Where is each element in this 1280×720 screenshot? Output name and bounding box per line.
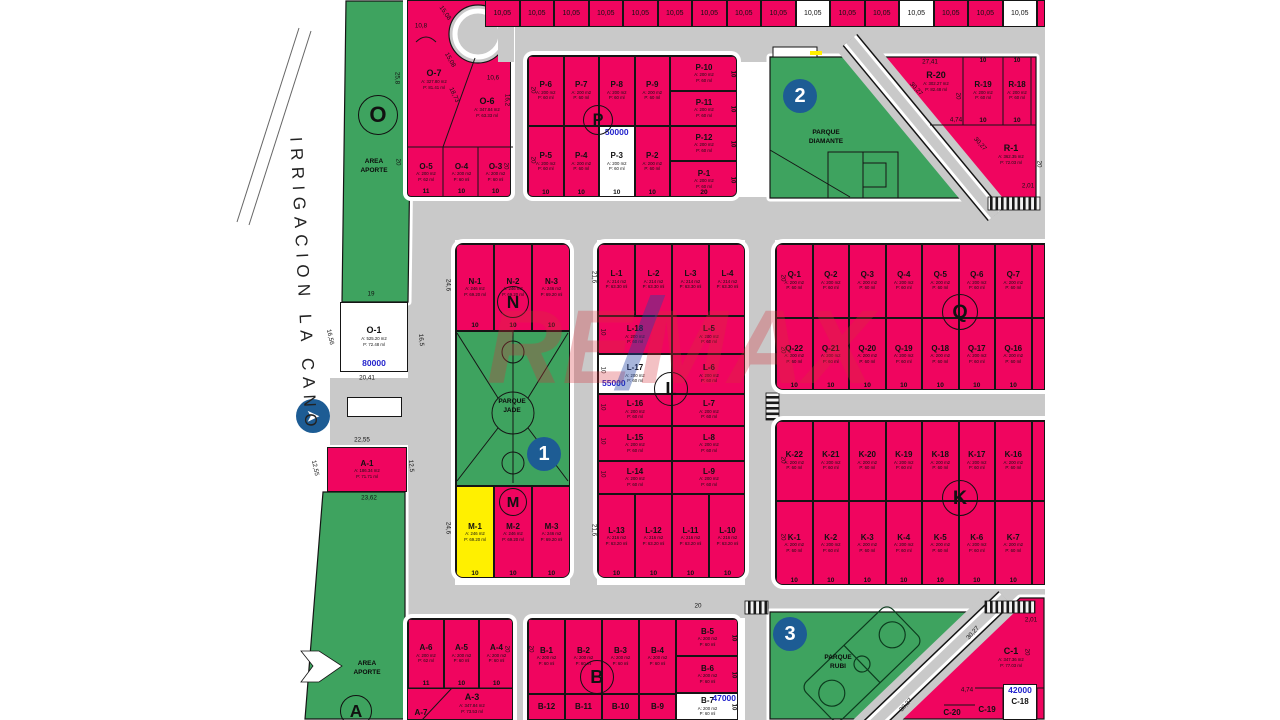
measurement-label: 10 [600, 403, 607, 410]
lot-C-1[interactable]: C-1A: 347.36 m2P: 77.03 ml [982, 642, 1040, 674]
park-label-line: PARQUE [809, 129, 843, 138]
lot-R-18[interactable]: R-18A: 200 m2P: 60 ml1010 [1003, 57, 1031, 125]
top-row-lot[interactable]: 10,05 [865, 0, 900, 27]
lot-frontage-label: 10 [963, 117, 1003, 124]
lot-code: O-1 [366, 326, 381, 336]
measurement-label: 18,73 [447, 86, 460, 103]
lot-C-19[interactable]: C-19 [972, 700, 1002, 720]
block-letter-K: K [942, 480, 978, 516]
measurement-label: 4,74 [961, 687, 973, 694]
measurement-label: 20 [780, 346, 787, 353]
measurement-label: 25,8 [394, 72, 401, 84]
map-labels: R-20A: 302.27 m2P: 82.48 mlR-19A: 200 m2… [0, 0, 1280, 720]
map-marker-2[interactable]: 2 [783, 79, 817, 113]
top-row-lot[interactable]: 10,05 [968, 0, 1003, 27]
measurement-label: 20 [780, 456, 787, 463]
block-letter-M: M [499, 488, 527, 516]
measurement-label: 15,08 [443, 51, 457, 68]
measurement-label: 10,6 [487, 75, 499, 82]
measurement-label: 20 [955, 92, 962, 99]
lot-code: C-18 [1011, 698, 1028, 707]
lot-R-1[interactable]: R-1A: 362.35 m2P: 72.03 ml [985, 127, 1037, 183]
top-row-lot[interactable]: 10,05 [830, 0, 865, 27]
park-label-line: AREA [353, 660, 380, 669]
top-row-lot[interactable]: 10,05 [899, 0, 934, 27]
measurement-label: 22,55 [354, 437, 370, 444]
measurement-label: 4,74 [950, 117, 962, 124]
measurement-label: 20 [503, 162, 510, 169]
measurement-label: 20 [1024, 648, 1031, 655]
measurement-label: 12,5 [407, 460, 415, 473]
park-label: PARQUERUBI [824, 654, 851, 672]
measurement-label: 10 [600, 328, 607, 335]
block-letter-B: B [580, 660, 614, 694]
lot-O-1[interactable]: 80000O-1A: 525.20 m2P: 72.48 ml [340, 302, 408, 372]
measurement-label: 20 [530, 86, 537, 93]
top-row-lot[interactable]: 10,05 [1003, 0, 1038, 27]
park-label-line: APORTE [360, 167, 387, 176]
top-row-lot[interactable]: 10,05 [934, 0, 969, 27]
measurement-label: 16,56 [325, 329, 335, 346]
lot-code: C-20 [943, 709, 960, 718]
block-letter-N: N [497, 286, 529, 318]
park-label-line: RUBI [824, 663, 851, 672]
top-row-lot[interactable]: 10,05 [589, 0, 624, 27]
measurement-label: 23,62 [361, 495, 377, 502]
top-row-lot[interactable]: 10,05 [623, 0, 658, 27]
measurement-label: 16,2 [504, 94, 511, 106]
measurement-label: 21,6 [591, 524, 598, 536]
lot-frontage-label: 10 [963, 58, 1003, 65]
lot-size-label: P: 77.03 ml [1000, 663, 1022, 669]
measurement-label: 24,6 [445, 522, 452, 534]
price-label: 80000 [341, 359, 407, 368]
road-label-box [347, 397, 402, 417]
measurement-label: 20 [780, 533, 787, 540]
map-marker-1[interactable]: 1 [527, 437, 561, 471]
lot-size-label: P: 60 ml [1009, 95, 1025, 101]
block-letter-L: L [654, 372, 688, 406]
lot-code: R-19 [974, 81, 991, 90]
measurement-label: 20,41 [359, 375, 375, 382]
top-row-lot[interactable]: 10,05 [520, 0, 555, 27]
measurement-label: 16,5 [417, 334, 425, 347]
lot-size-label: P: 71.71 ml [356, 474, 378, 480]
measurement-label: 20 [504, 645, 511, 652]
lot-size-label: P: 60 ml [975, 95, 991, 101]
subdivision-map: O-7A: 327.80 m2P: 81.41 mlO-6A: 347.84 m… [0, 0, 1280, 720]
measurement-label: 20 [1036, 160, 1043, 167]
measurement-label: 24,6 [445, 279, 452, 291]
measurement-label: 15,08 [438, 5, 453, 22]
measurement-label: 10,8 [415, 23, 427, 30]
lot-size-label: P: 82.48 ml [925, 87, 947, 93]
measurement-label: 30,27 [965, 625, 981, 641]
block-letter-Q: Q [942, 294, 978, 330]
lot-C-20[interactable]: C-20 [938, 706, 966, 720]
measurement-label: 2,01 [1025, 617, 1037, 624]
lot-frontage-label: 10 [1003, 117, 1031, 124]
measurement-label: 19 [367, 291, 374, 298]
top-row-lot[interactable]: 10,05 [485, 0, 520, 27]
block-letter-A: A [340, 695, 372, 720]
measurement-label: 2,01 [1022, 183, 1034, 190]
top-row-lot[interactable] [1037, 0, 1045, 27]
lot-R-19[interactable]: R-19A: 200 m2P: 60 ml1010 [963, 57, 1003, 125]
measurement-label: 10 [600, 366, 607, 373]
measurement-label: 20 [694, 603, 701, 610]
measurement-label: 27,41 [922, 59, 938, 66]
lot-code: R-18 [1008, 81, 1025, 90]
lot-code: R-20 [926, 71, 946, 81]
measurement-label: 20 [395, 158, 402, 165]
lot-frontage-label: 10 [1003, 58, 1031, 65]
top-row-lot[interactable]: 10,05 [554, 0, 589, 27]
lot-size-label: P: 72.03 ml [1000, 160, 1022, 166]
park-label-line: AREA [360, 158, 387, 167]
park-label-line: APORTE [353, 669, 380, 678]
lot-C-18[interactable]: 42000C-18 [1003, 684, 1037, 720]
top-row-lot[interactable]: 10,05 [761, 0, 796, 27]
top-row-lot[interactable]: 10,05 [727, 0, 762, 27]
lot-A-1[interactable]: A-1A: 186.34 m2P: 71.71 ml [327, 447, 407, 492]
park-label-line: JADE [498, 407, 525, 416]
top-row-lot[interactable]: 10,05 [692, 0, 727, 27]
measurement-label: 20 [780, 274, 787, 281]
lot-code: C-1 [1004, 647, 1019, 657]
park-label-line: PARQUE [824, 654, 851, 663]
measurement-label: 10 [600, 437, 607, 444]
lot-code: C-19 [978, 706, 995, 715]
lot-code: R-1 [1004, 144, 1019, 154]
top-row-lot[interactable]: 10,05 [658, 0, 693, 27]
block-letter-P: P [583, 105, 613, 135]
park-label: PARQUEJADE [498, 398, 525, 416]
park-label: AREAAPORTE [360, 158, 387, 176]
measurement-label: 21,6 [591, 271, 598, 283]
top-row-lot[interactable]: 10,05 [796, 0, 831, 27]
park-label-line: PARQUE [498, 398, 525, 407]
measurement-label: 20 [528, 645, 535, 652]
price-label: 42000 [1004, 686, 1036, 695]
lot-size-label: P: 72.48 ml [363, 342, 385, 348]
park-label: AREAAPORTE [353, 660, 380, 678]
lot-code: A-1 [361, 460, 374, 469]
park-label-line: DIAMANTE [809, 138, 843, 147]
measurement-label: 30,27 [898, 697, 914, 713]
map-marker-3[interactable]: 3 [773, 617, 807, 651]
block-letter-O: O [358, 95, 398, 135]
measurement-label: 10 [600, 470, 607, 477]
measurement-label: 20 [530, 156, 537, 163]
park-label: PARQUEDIAMANTE [809, 129, 843, 147]
